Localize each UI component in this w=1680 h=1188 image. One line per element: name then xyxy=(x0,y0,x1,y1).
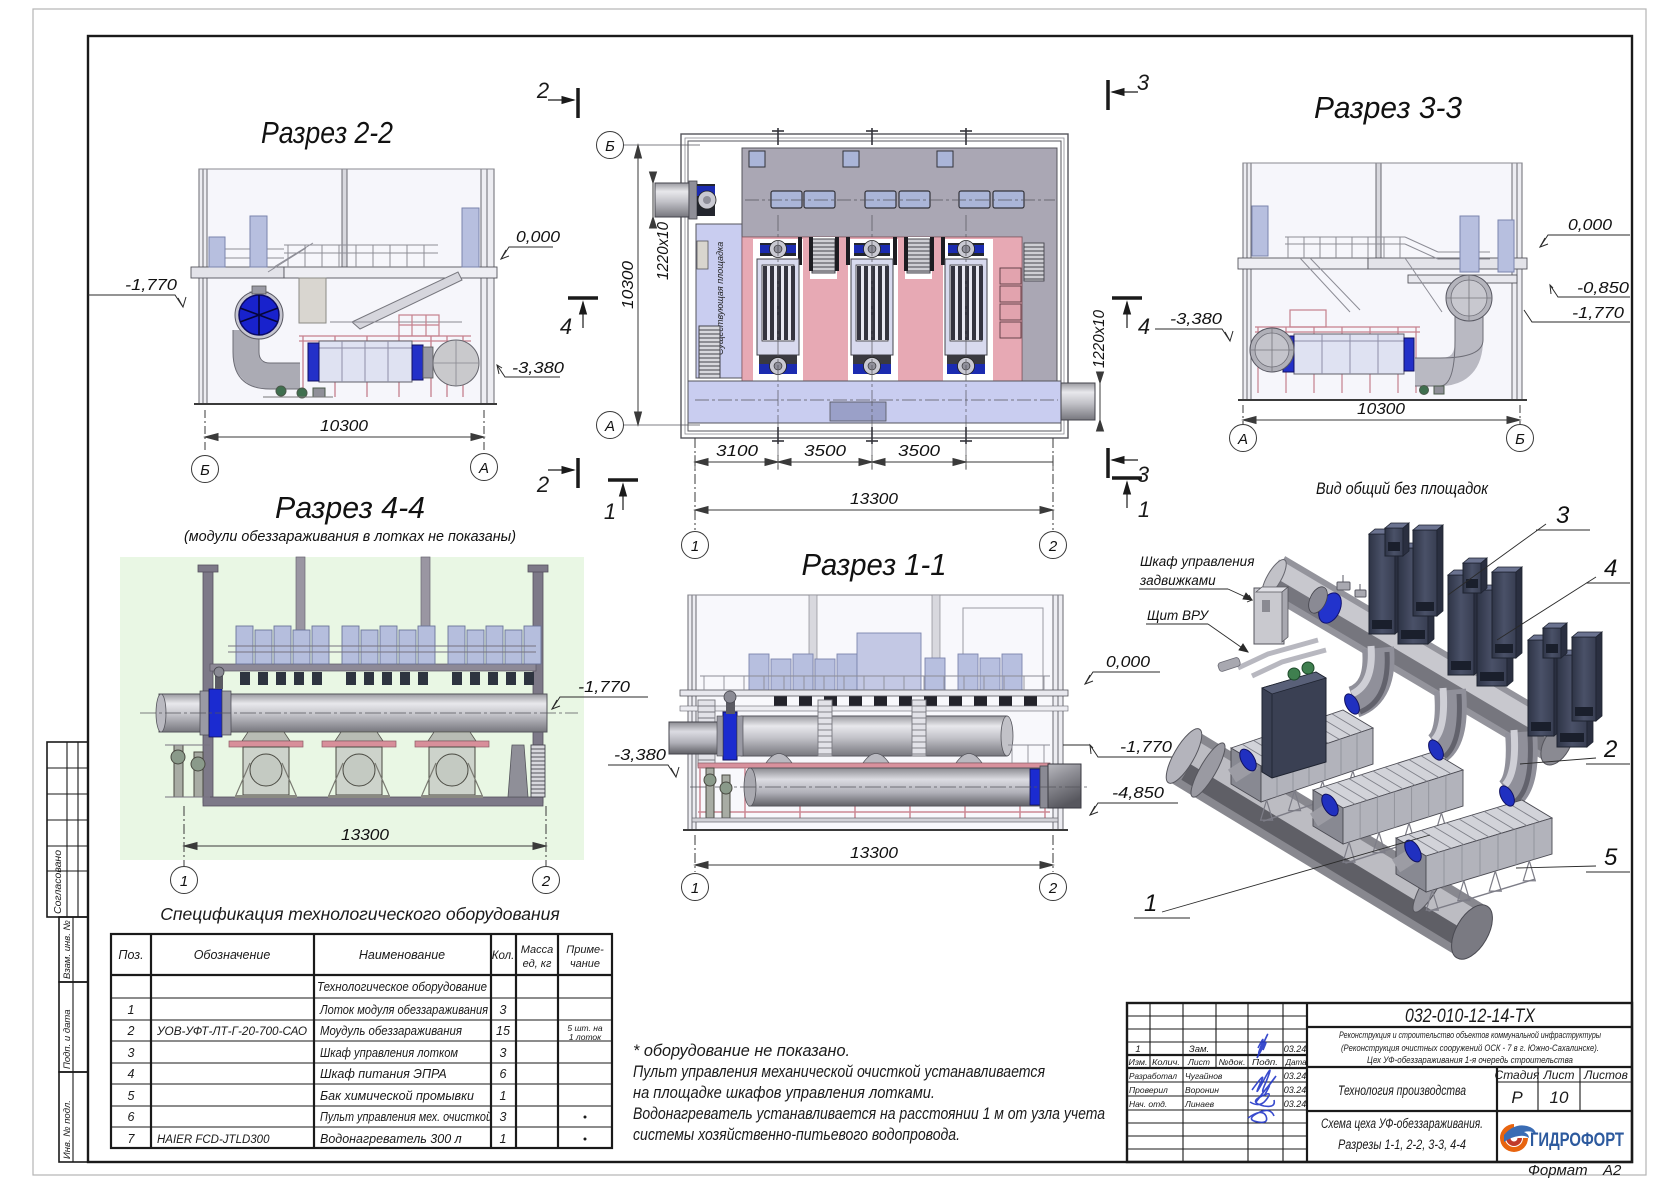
svg-text:5: 5 xyxy=(128,1089,135,1103)
svg-text:Масса: Масса xyxy=(521,944,554,956)
svg-text:1: 1 xyxy=(691,538,699,555)
svg-text:4: 4 xyxy=(560,314,572,339)
svg-text:1: 1 xyxy=(1144,890,1157,917)
svg-text:0,000: 0,000 xyxy=(1106,654,1150,671)
svg-text:Схема цеха УФ-обеззараживания.: Схема цеха УФ-обеззараживания. xyxy=(1321,1116,1483,1131)
svg-text:15: 15 xyxy=(496,1024,510,1038)
svg-text:1: 1 xyxy=(500,1089,507,1103)
svg-text:6: 6 xyxy=(500,1067,507,1081)
svg-text:Бак химической промывки: Бак химической промывки xyxy=(320,1089,474,1103)
svg-text:3: 3 xyxy=(500,1110,507,1124)
svg-text:13300: 13300 xyxy=(850,845,898,862)
svg-text:-3,380: -3,380 xyxy=(512,360,564,377)
svg-text:0,000: 0,000 xyxy=(1568,217,1612,234)
svg-text:№док.: №док. xyxy=(1219,1057,1246,1067)
svg-text:Б: Б xyxy=(200,462,210,479)
svg-text:Подп.: Подп. xyxy=(1252,1057,1278,1067)
svg-text:Р: Р xyxy=(1511,1088,1523,1107)
svg-text:Технология производства: Технология производства xyxy=(1338,1083,1466,1098)
svg-text:3: 3 xyxy=(128,1046,135,1060)
svg-text:1220х10: 1220х10 xyxy=(1091,310,1108,368)
svg-text:3: 3 xyxy=(1556,502,1570,529)
svg-text:13300: 13300 xyxy=(341,827,389,844)
svg-text:2: 2 xyxy=(1048,538,1058,555)
svg-text:Щит ВРУ: Щит ВРУ xyxy=(1147,608,1209,623)
svg-text:03.24: 03.24 xyxy=(1284,1085,1307,1095)
svg-text:Лист: Лист xyxy=(1187,1057,1210,1067)
svg-text:Водонагреватель 300 л: Водонагреватель 300 л xyxy=(320,1132,462,1146)
svg-text:Разрез 1-1: Разрез 1-1 xyxy=(802,547,947,582)
svg-text:Чугайнов: Чугайнов xyxy=(1185,1071,1223,1081)
svg-text:-1,770: -1,770 xyxy=(1120,739,1172,756)
svg-text:Б: Б xyxy=(605,138,615,155)
svg-text:задвижками: задвижками xyxy=(1139,573,1216,588)
svg-text:10300: 10300 xyxy=(1357,401,1405,418)
svg-text:-1,770: -1,770 xyxy=(1572,305,1624,322)
svg-text:2: 2 xyxy=(127,1024,135,1038)
svg-text:2: 2 xyxy=(1048,880,1058,897)
svg-text:ед, кг: ед, кг xyxy=(523,958,552,970)
svg-text:Согласовано: Согласовано xyxy=(52,850,64,914)
svg-text:HAIER FCD-JTLD300: HAIER FCD-JTLD300 xyxy=(157,1134,270,1146)
svg-text:Зам.: Зам. xyxy=(1189,1044,1209,1055)
svg-text:3500: 3500 xyxy=(898,443,940,460)
svg-text:системы хозяйственно-питьевого: системы хозяйственно-питьевого водопрово… xyxy=(633,1126,960,1144)
svg-text:А: А xyxy=(478,460,489,477)
svg-text:2: 2 xyxy=(541,873,551,890)
svg-text:Воронин: Воронин xyxy=(1185,1085,1219,1095)
svg-text:3: 3 xyxy=(1137,462,1150,487)
svg-text:-3,380: -3,380 xyxy=(1170,311,1222,328)
svg-text:6: 6 xyxy=(128,1110,135,1124)
svg-text:Нач. отд.: Нач. отд. xyxy=(1129,1099,1167,1109)
svg-text:Вид общий без площадок: Вид общий без площадок xyxy=(1316,480,1489,498)
svg-text:10300: 10300 xyxy=(320,418,368,435)
svg-text:Моудуль обеззараживания: Моудуль обеззараживания xyxy=(320,1024,462,1038)
svg-text:Взам. инв. №: Взам. инв. № xyxy=(62,920,73,979)
svg-text:10: 10 xyxy=(1550,1088,1569,1107)
svg-text:03.24: 03.24 xyxy=(1284,1071,1307,1081)
svg-text:2: 2 xyxy=(536,78,549,103)
svg-text:1: 1 xyxy=(604,499,616,524)
svg-text:1: 1 xyxy=(128,1003,135,1017)
svg-text:2: 2 xyxy=(536,472,549,497)
svg-text:3: 3 xyxy=(1137,70,1150,95)
svg-text:4: 4 xyxy=(1604,555,1617,582)
svg-text:А: А xyxy=(604,418,615,435)
svg-text:Линаев: Линаев xyxy=(1184,1099,1215,1109)
svg-text:Б: Б xyxy=(1515,431,1525,448)
svg-text:Спецификация технологического: Спецификация технологического оборудован… xyxy=(160,904,559,924)
svg-text:Обозначение: Обозначение xyxy=(194,948,271,962)
svg-text:1: 1 xyxy=(1138,497,1150,522)
svg-text:Пульт управления механической: Пульт управления механической очисткой у… xyxy=(633,1063,1045,1081)
svg-text:УОВ-УФТ-ЛТ-Г-20-700-САО: УОВ-УФТ-ЛТ-Г-20-700-САО xyxy=(156,1026,307,1038)
svg-text:3: 3 xyxy=(500,1046,507,1060)
svg-text:Кол.: Кол. xyxy=(492,950,515,962)
svg-text:Разрезы 1-1, 2-2, 3-3, 4-4: Разрезы 1-1, 2-2, 3-3, 4-4 xyxy=(1338,1137,1466,1152)
svg-text:Стадия: Стадия xyxy=(1495,1068,1541,1082)
svg-text:Листов: Листов xyxy=(1583,1068,1628,1082)
svg-text:1: 1 xyxy=(691,880,699,897)
svg-text:Реконструкция и строительство: Реконструкция и строительство объектов к… xyxy=(1339,1030,1601,1041)
svg-text:Проверил: Проверил xyxy=(1129,1085,1168,1095)
svg-text:Шкаф питания ЭПРА: Шкаф питания ЭПРА xyxy=(320,1067,447,1081)
svg-text:2: 2 xyxy=(1603,736,1617,763)
svg-text:5: 5 xyxy=(1604,844,1618,871)
svg-text:Шкаф управления лотком: Шкаф управления лотком xyxy=(320,1046,458,1060)
svg-text:1 лоток: 1 лоток xyxy=(569,1032,602,1042)
svg-text:Разрез 2-2: Разрез 2-2 xyxy=(261,115,393,150)
svg-text:ГИДРОФОРТ: ГИДРОФОРТ xyxy=(1530,1130,1624,1151)
svg-text:А2: А2 xyxy=(1602,1162,1622,1179)
svg-text:чание: чание xyxy=(570,958,600,970)
svg-text:1: 1 xyxy=(500,1132,507,1146)
svg-text:10300: 10300 xyxy=(620,261,637,309)
svg-text:3500: 3500 xyxy=(804,443,846,460)
svg-text:4: 4 xyxy=(1138,314,1150,339)
svg-text:Разработал: Разработал xyxy=(1129,1071,1177,1081)
svg-text:(модули обеззараживания в лотк: (модули обеззараживания в лотках не пока… xyxy=(184,528,516,545)
svg-text:Формат: Формат xyxy=(1528,1162,1588,1179)
svg-text:на площадке шкафов управления: на площадке шкафов управления лотками. xyxy=(633,1084,935,1102)
svg-text:Лист: Лист xyxy=(1543,1068,1575,1082)
svg-text:1: 1 xyxy=(1135,1044,1140,1055)
svg-text:Разрез 4-4: Разрез 4-4 xyxy=(275,490,425,525)
svg-text:Колич.: Колич. xyxy=(1152,1057,1180,1067)
svg-text:4: 4 xyxy=(128,1067,135,1081)
svg-text:-3,380: -3,380 xyxy=(614,747,666,764)
svg-text:Наименование: Наименование xyxy=(359,948,445,962)
svg-text:-1,770: -1,770 xyxy=(125,277,177,294)
svg-text:7: 7 xyxy=(128,1132,136,1146)
svg-text:Шкаф управления: Шкаф управления xyxy=(1140,554,1254,569)
svg-text:03.24: 03.24 xyxy=(1284,1044,1307,1054)
svg-text:Пульт управления мех. очисткой: Пульт управления мех. очисткой xyxy=(320,1110,492,1124)
svg-text:Водонагреватель устанавливаетс: Водонагреватель устанавливается на расст… xyxy=(633,1105,1105,1123)
svg-text:13300: 13300 xyxy=(850,491,898,508)
svg-text:3: 3 xyxy=(500,1003,507,1017)
svg-text:1: 1 xyxy=(180,873,188,890)
svg-text:Инв. № подл.: Инв. № подл. xyxy=(62,1100,73,1159)
svg-text:-1,770: -1,770 xyxy=(578,679,630,696)
svg-text:Приме-: Приме- xyxy=(566,944,604,956)
svg-text:Технологическое оборудование: Технологическое оборудование xyxy=(317,980,487,994)
svg-text:Изм.: Изм. xyxy=(1129,1057,1148,1067)
svg-text:-0,850: -0,850 xyxy=(1577,280,1629,297)
svg-text:3100: 3100 xyxy=(716,443,758,460)
svg-text:-4,850: -4,850 xyxy=(1112,785,1164,802)
svg-text:Разрез 3-3: Разрез 3-3 xyxy=(1314,90,1462,125)
svg-text:(Реконструкция очистных сооруж: (Реконструкция очистных сооружений ОСК -… xyxy=(1341,1043,1599,1054)
svg-text:А: А xyxy=(1237,431,1248,448)
svg-text:Дата: Дата xyxy=(1285,1057,1307,1067)
svg-text:032-010-12-14-ТХ: 032-010-12-14-ТХ xyxy=(1405,1006,1536,1027)
svg-text:* оборудование не показано.: * оборудование не показано. xyxy=(633,1042,850,1060)
svg-text:Поз.: Поз. xyxy=(118,948,143,962)
svg-text:Цех УФ-обеззараживания 1-я оче: Цех УФ-обеззараживания 1-я очередь строи… xyxy=(1367,1055,1573,1066)
svg-text:03.24: 03.24 xyxy=(1284,1099,1307,1109)
svg-text:1220х10: 1220х10 xyxy=(655,222,672,280)
svg-text:0,000: 0,000 xyxy=(516,229,560,246)
svg-text:Подп. и дата: Подп. и дата xyxy=(62,1010,73,1069)
svg-text:Лоток модуля обеззараживания: Лоток модуля обеззараживания xyxy=(319,1003,488,1017)
